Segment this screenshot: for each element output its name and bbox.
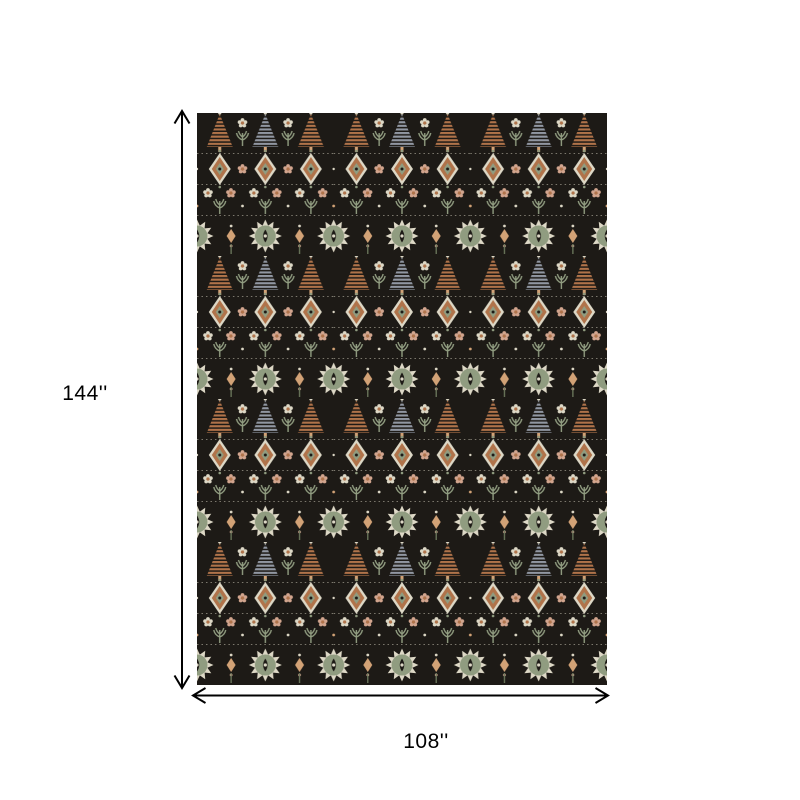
height-dimension-line xyxy=(175,111,190,688)
arrow-up-icon xyxy=(175,111,190,124)
width-dimension-label: 108'' xyxy=(381,730,471,754)
height-dimension-label: 144'' xyxy=(40,382,130,406)
rug-image xyxy=(197,113,607,685)
rug-pattern xyxy=(197,113,607,685)
arrow-right-icon xyxy=(596,688,609,703)
width-dimension-line xyxy=(193,688,608,703)
arrow-left-icon xyxy=(193,688,206,703)
dimension-diagram: 144'' 108'' xyxy=(0,0,800,800)
arrow-down-icon xyxy=(175,676,190,689)
